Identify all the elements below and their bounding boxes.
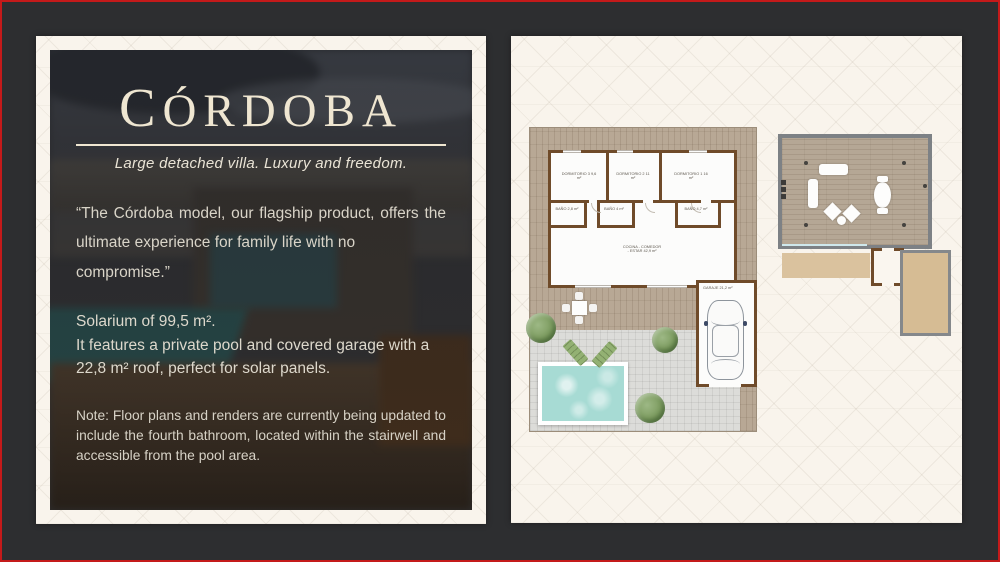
quote-line: “The Córdoba model, our flagship product… — [76, 199, 446, 228]
window — [617, 150, 633, 153]
sliding-door — [647, 285, 687, 288]
garage-roof — [900, 250, 951, 336]
spec-line: 22,8 m² roof, perfect for solar panels. — [76, 357, 446, 381]
pool — [538, 362, 628, 425]
chair — [575, 292, 583, 300]
terrace-chair — [877, 208, 888, 214]
main-house: DORMITORIO 3 9,6 m² DORMITORIO 2 11 m² D… — [548, 150, 737, 288]
room-label-garaje: GARAJE 21,2 m² — [703, 286, 742, 291]
room-label-bano-2: BAÑO 4 m² — [595, 207, 634, 212]
window — [563, 150, 581, 153]
note-line: Note: Floor plans and renders are curren… — [76, 406, 446, 426]
glass-railing — [782, 244, 867, 246]
fixture — [781, 187, 786, 192]
room-label-bano-1: BAÑO 2,8 m² — [548, 207, 587, 212]
villa-photo: Córdoba Large detached villa. Luxury and… — [50, 50, 472, 510]
spec-line: It features a private pool and covered g… — [76, 334, 446, 358]
fixture — [781, 194, 786, 199]
side-table — [837, 216, 846, 225]
room-label-dormitorio-2: DORMITORIO 2 11 m² — [614, 172, 653, 181]
floor-plan-card: DORMITORIO 3 9,6 m² DORMITORIO 2 11 m² D… — [511, 36, 962, 523]
note-line: accessible from the pool area. — [76, 446, 446, 466]
description-card: Córdoba Large detached villa. Luxury and… — [36, 36, 486, 524]
quote-line: ultimate experience for family life with… — [76, 228, 446, 287]
car-rear-window — [711, 359, 740, 369]
room-label-dormitorio-3: DORMITORIO 3 9,6 m² — [560, 172, 599, 181]
room-label-dormitorio-1: DORMITORIO 1 16 m² — [672, 172, 711, 181]
model-subtitle: Large detached villa. Luxury and freedom… — [76, 155, 446, 172]
wall — [584, 200, 587, 228]
car — [707, 300, 744, 380]
roof-section — [782, 253, 870, 278]
door-opening — [701, 200, 711, 203]
terrace-light — [902, 223, 906, 227]
room-label-bano-3: BAÑO 4,7 m² — [677, 207, 716, 212]
chair — [562, 304, 570, 312]
terrace-light — [902, 161, 906, 165]
bush — [652, 327, 678, 353]
floor-plan: DORMITORIO 3 9,6 m² DORMITORIO 2 11 m² D… — [511, 36, 962, 523]
chair — [575, 316, 583, 324]
terrace-light — [804, 223, 808, 227]
brochure-page: Córdoba Large detached villa. Luxury and… — [0, 0, 1000, 562]
terrace-table — [874, 182, 891, 208]
note-line: include the fourth bathroom, located wit… — [76, 426, 446, 446]
solarium-terrace — [778, 134, 932, 249]
window — [689, 150, 707, 153]
wall — [675, 200, 678, 228]
garage: GARAJE 21,2 m² — [696, 280, 757, 387]
car-mirror — [704, 321, 708, 326]
wall — [632, 200, 635, 228]
wall — [659, 153, 662, 200]
wall — [675, 225, 721, 228]
specs-paragraph: Solarium of 99,5 m². It features a priva… — [76, 310, 446, 381]
title-divider — [76, 144, 446, 146]
chair — [589, 304, 597, 312]
lounger — [808, 179, 818, 208]
wall — [597, 225, 635, 228]
car-mirror — [743, 321, 747, 326]
sliding-door — [575, 285, 611, 288]
terrace-chair — [877, 176, 888, 182]
outdoor-dining-set — [563, 294, 597, 322]
spec-line: Solarium of 99,5 m². — [76, 310, 446, 334]
bush — [526, 313, 556, 343]
car-roof — [712, 325, 739, 357]
description-content: Córdoba Large detached villa. Luxury and… — [50, 50, 472, 510]
terrace-light — [804, 161, 808, 165]
wall — [718, 200, 721, 228]
outdoor-sofa — [819, 164, 848, 175]
room-label-living: COCINA - COMEDOR - ESTAR 42,9 m² — [623, 245, 662, 254]
table — [572, 301, 587, 315]
door-arc — [645, 203, 655, 213]
fixture — [923, 184, 927, 188]
wall — [551, 225, 586, 228]
stair-opening — [882, 283, 894, 286]
pool-water — [542, 366, 624, 421]
fixture — [781, 180, 786, 185]
model-title: Córdoba — [76, 78, 446, 138]
quote-paragraph: “The Córdoba model, our flagship product… — [76, 199, 446, 287]
bush — [635, 393, 665, 423]
note-paragraph: Note: Floor plans and renders are curren… — [76, 406, 446, 467]
wall — [606, 153, 609, 200]
stair-opening — [882, 248, 894, 251]
garage-door-opening — [709, 384, 741, 387]
